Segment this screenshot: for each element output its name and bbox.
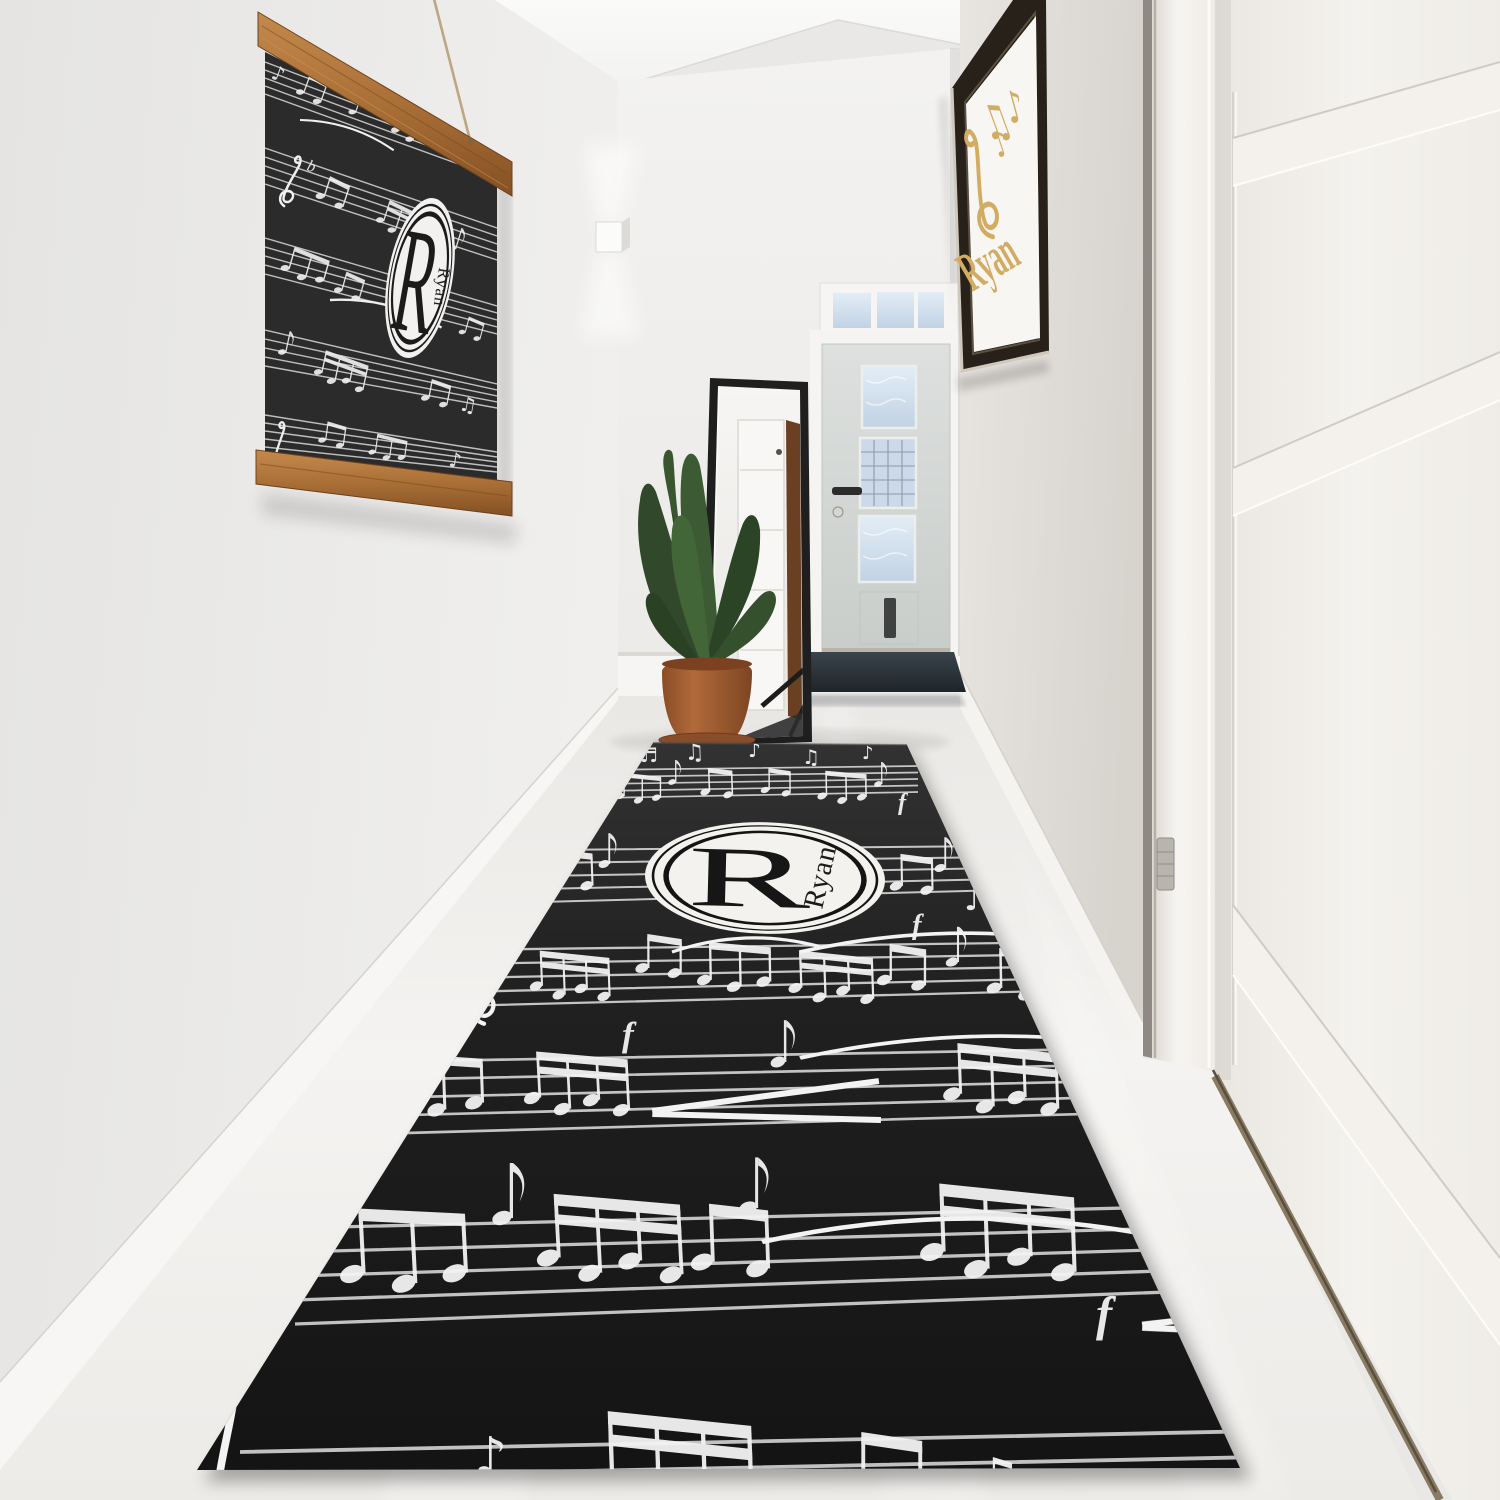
entry-door	[810, 283, 958, 660]
sconce-body	[596, 222, 622, 252]
hanging-side-shadow	[497, 175, 512, 515]
door-hinge	[1157, 838, 1174, 890]
transom-pane	[918, 292, 944, 328]
entry-doormat	[794, 652, 966, 692]
entry-door-handle	[832, 487, 862, 495]
transom-pane	[877, 292, 914, 328]
string-knot	[467, 139, 473, 145]
rug-monogram-initial: R	[686, 828, 812, 927]
beamed-notes-icon	[802, 745, 820, 769]
beamed-notes-icon	[684, 740, 705, 766]
door-glass-panes	[859, 366, 916, 582]
transom-pane	[833, 293, 871, 328]
doormat-reflection	[794, 694, 966, 706]
slab-edge-shading	[1215, 0, 1231, 1080]
hallway-product-photo: ♪ ♫ ♬ f b	[0, 0, 1500, 1500]
hallway-scene: ♪ ♫ ♬ f b	[0, 0, 1500, 1500]
pot-rim	[662, 658, 752, 671]
plant-pot	[662, 661, 752, 741]
door-gap-shadow	[1143, 0, 1152, 1058]
door-glass-pane	[859, 516, 915, 582]
keyhole	[833, 507, 843, 517]
eighth-note-icon	[862, 743, 874, 764]
letter-slot	[884, 598, 896, 638]
door-jamb	[1152, 0, 1215, 1072]
transom-window	[820, 283, 958, 335]
door-glass-pane	[862, 366, 916, 428]
sconce-side	[622, 217, 630, 252]
reflected-door-handle	[776, 449, 782, 455]
